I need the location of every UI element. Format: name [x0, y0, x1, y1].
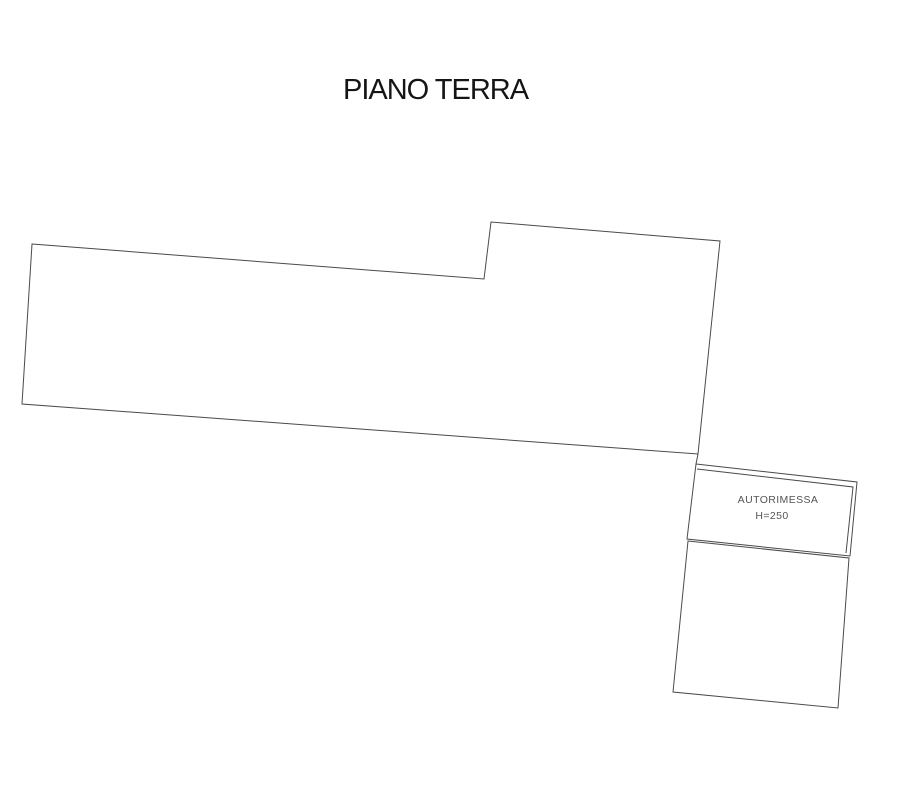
garage-lower-room-outline [673, 541, 849, 708]
garage-room-height-label: H=250 [755, 511, 788, 522]
garage-room-name-label: AUTORIMESSA [738, 495, 819, 506]
garage-wall-connector [696, 454, 698, 464]
floor-plan-sheet: PIANO TERRA AUTORIMESSA H=250 [0, 0, 897, 792]
floor-plan-drawing [0, 0, 897, 792]
main-floor-outline [22, 222, 720, 454]
